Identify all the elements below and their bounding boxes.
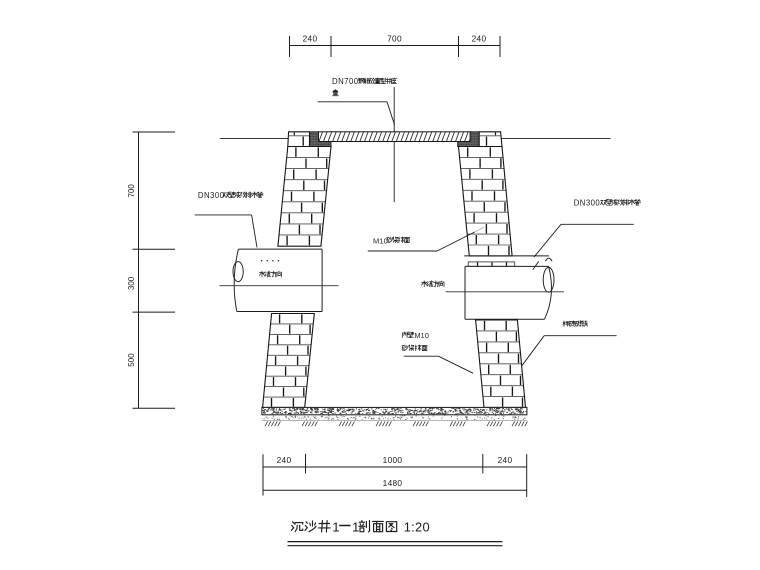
svg-text:240: 240 bbox=[277, 455, 292, 465]
svg-text:240: 240 bbox=[498, 455, 513, 465]
svg-text:1: 1 bbox=[352, 520, 359, 535]
svg-text:DN300: DN300 bbox=[574, 199, 601, 208]
svg-text:DN700: DN700 bbox=[332, 77, 359, 86]
svg-text:DN300: DN300 bbox=[198, 191, 225, 200]
svg-text:1000: 1000 bbox=[383, 455, 403, 465]
svg-text:M10: M10 bbox=[373, 236, 388, 245]
svg-text:700: 700 bbox=[387, 34, 402, 44]
svg-text:1:20: 1:20 bbox=[404, 520, 430, 535]
svg-text:1480: 1480 bbox=[383, 478, 403, 488]
svg-text:700: 700 bbox=[127, 184, 136, 198]
svg-text:300: 300 bbox=[127, 276, 136, 290]
svg-text:500: 500 bbox=[127, 353, 136, 367]
svg-text:M10: M10 bbox=[415, 331, 430, 340]
svg-text:240: 240 bbox=[303, 34, 318, 44]
svg-text:1: 1 bbox=[332, 520, 339, 535]
svg-text:240: 240 bbox=[472, 34, 487, 44]
